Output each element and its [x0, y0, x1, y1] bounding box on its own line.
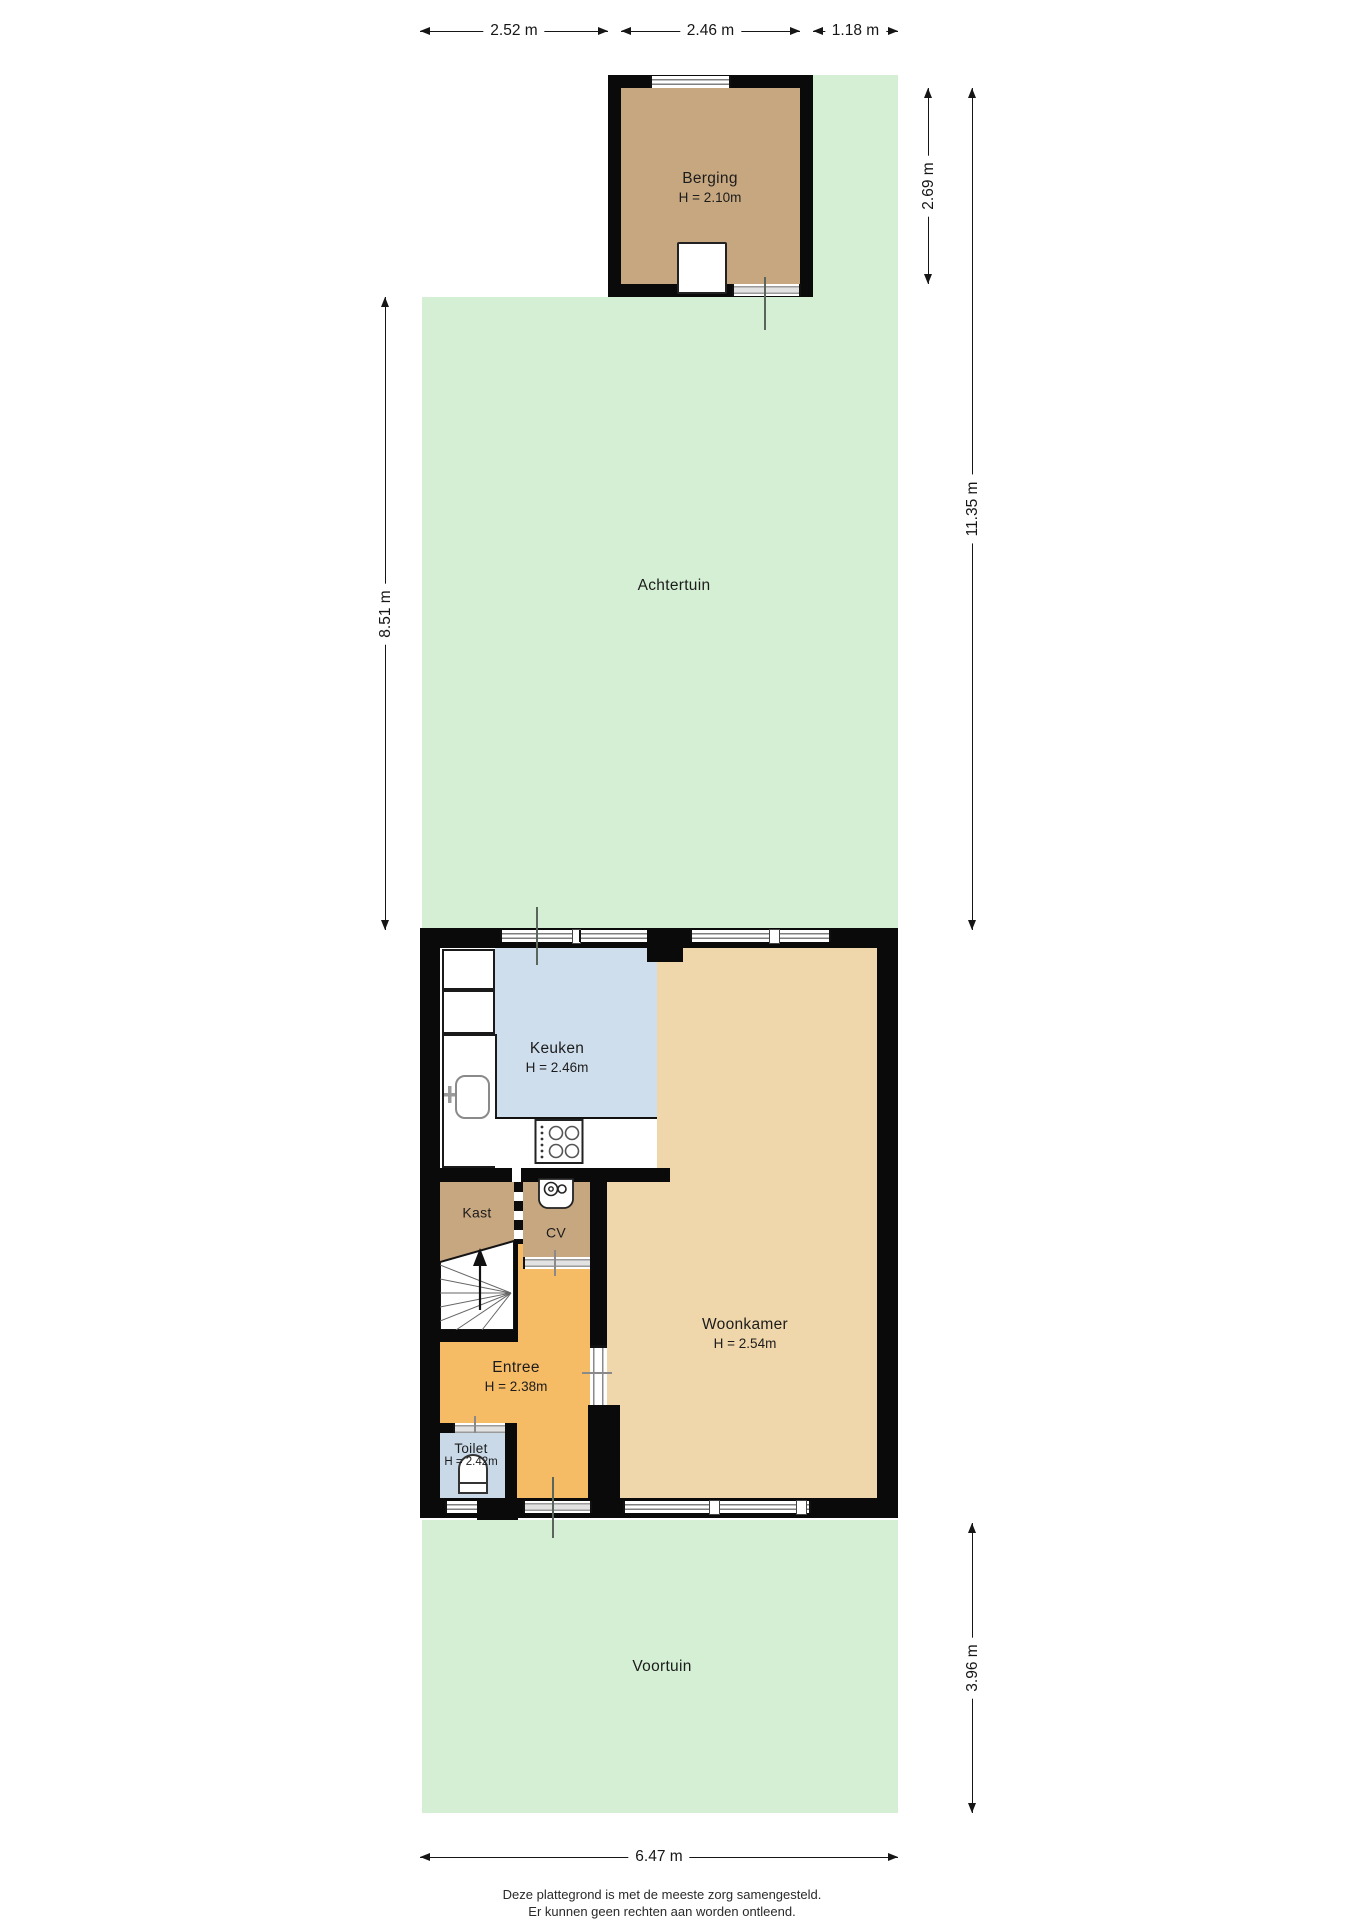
- dim-right-total: 11.35 m: [972, 88, 973, 930]
- woonkamer-rear-window: [690, 930, 831, 942]
- disclaimer-line-2: Er kunnen geen rechten aan worden ontlee…: [362, 1903, 962, 1920]
- cv-label: CV: [546, 1224, 566, 1243]
- staircase: [440, 1238, 518, 1342]
- glass-door-line: [582, 1372, 612, 1374]
- cv-door-line: [554, 1250, 556, 1276]
- achtertuin-label: Achtertuin: [638, 577, 711, 595]
- rear-wall-pillar: [647, 928, 683, 962]
- front-door-line: [552, 1477, 554, 1538]
- dim-top-right: 1.18 m: [813, 31, 898, 32]
- disclaimer: Deze plattegrond is met de meeste zorg s…: [362, 1886, 962, 1920]
- toilet-door-opening: [453, 1423, 509, 1433]
- entree-label: Entree H = 2.38m: [485, 1358, 548, 1396]
- keuken-floor: [495, 948, 657, 1117]
- kitchen-window-right: [579, 930, 649, 942]
- front-wall-pillar: [477, 1498, 518, 1520]
- berging-door-leaf: [677, 242, 727, 294]
- entree-woonkamer-wall-lower: [588, 1405, 620, 1498]
- front-window-post-2: [796, 1500, 807, 1515]
- berging-window: [650, 76, 731, 88]
- entree-woonkamer-glass-door: [590, 1345, 607, 1411]
- dim-left-garden: 8.51 m: [385, 297, 386, 930]
- dim-right-voortuin: 3.96 m: [972, 1523, 973, 1813]
- achtertuin-area: [422, 297, 898, 930]
- kitchen-cabinet-2: [442, 990, 495, 1034]
- disclaimer-line-1: Deze plattegrond is met de meeste zorg s…: [362, 1886, 962, 1903]
- kitchen-south-wall-gap: [512, 1168, 521, 1182]
- kitchen-garden-door-line: [536, 907, 538, 965]
- achtertuin-side-strip: [813, 75, 898, 297]
- cv-boiler-icon: [538, 1178, 574, 1210]
- kitchen-window-left: [500, 930, 577, 942]
- stove-icon: [534, 1118, 586, 1166]
- toilet-right-wall: [505, 1423, 517, 1498]
- dim-bottom-house: 6.47 m: [420, 1857, 898, 1858]
- berging-door-opening: [732, 284, 801, 296]
- cv-door-opening: [523, 1257, 594, 1269]
- dim-right-berging: 2.69 m: [928, 88, 929, 284]
- berging-label: Berging H = 2.10m: [679, 169, 742, 207]
- floorplan: Achtertuin Voortuin Berging H = 2.10m Ke…: [0, 0, 1358, 1920]
- front-window-post-1: [709, 1500, 720, 1515]
- toilet-label: Toilet H = 2.42m: [444, 1441, 497, 1469]
- berging-door-line: [764, 277, 766, 330]
- rear-window-post: [769, 929, 780, 944]
- entree-woonkamer-wall-upper: [590, 1168, 607, 1345]
- front-door-opening: [523, 1501, 592, 1513]
- dim-top-left: 2.52 m: [420, 31, 608, 32]
- kitchen-cabinet-1: [442, 949, 495, 990]
- woonkamer-label: Woonkamer H = 2.54m: [702, 1315, 788, 1353]
- dim-top-middle: 2.46 m: [621, 31, 800, 32]
- kast-label: Kast: [462, 1204, 491, 1223]
- voortuin-label: Voortuin: [632, 1658, 691, 1676]
- stairs-bottom-wall: [440, 1330, 518, 1342]
- kitchen-sink: [443, 1062, 496, 1132]
- keuken-label: Keuken H = 2.46m: [526, 1039, 589, 1077]
- toilet-front-window: [445, 1501, 481, 1513]
- kast-cv-divider: [514, 1182, 523, 1244]
- stairs-right-wall: [514, 1241, 518, 1330]
